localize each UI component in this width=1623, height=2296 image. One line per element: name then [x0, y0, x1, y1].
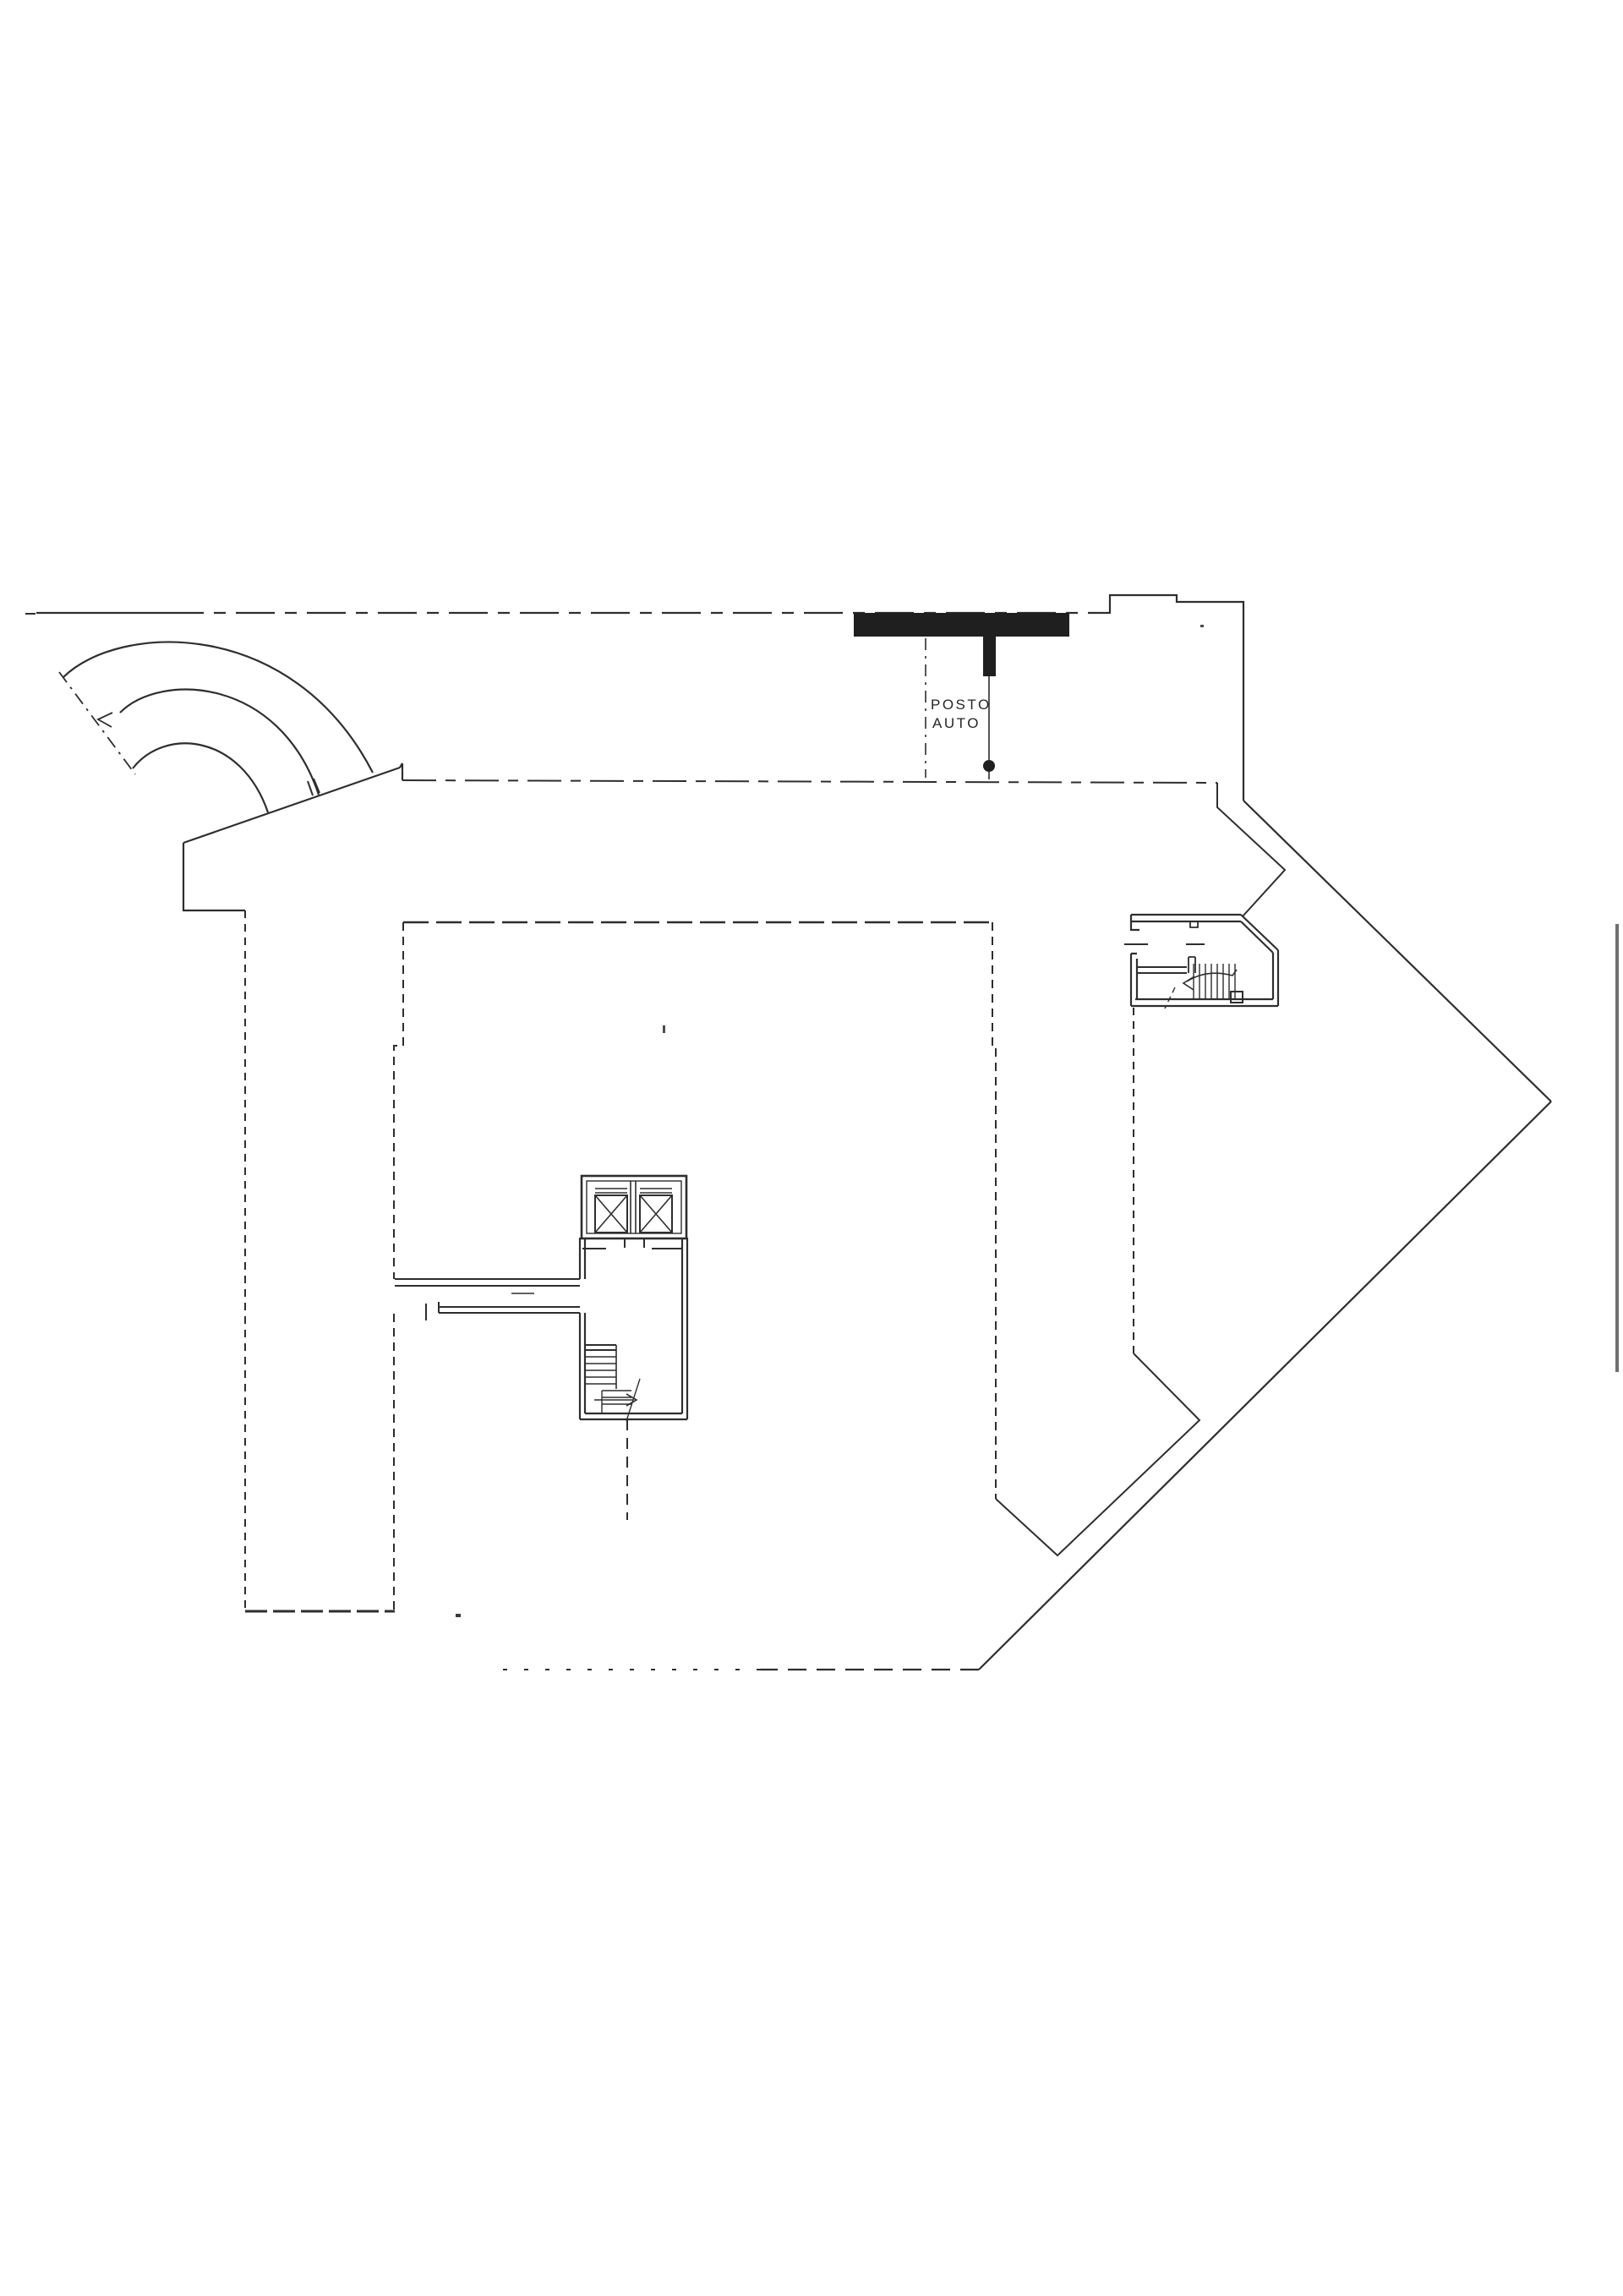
inner-outline-right [992, 922, 996, 1499]
elevator-left-door-lines [595, 1189, 627, 1193]
right-stair-west-wall [1131, 954, 1137, 1006]
right-stair-north-wall [1131, 915, 1241, 930]
right-stair-landing-tab [1189, 957, 1195, 973]
ramp-direction-arrow-icon [98, 713, 112, 727]
right-wing-upper-edge [1243, 801, 1551, 1102]
right-stair-landing-wall [1137, 967, 1187, 973]
elevator-right-door-lines [640, 1189, 672, 1193]
right-stair [1124, 915, 1278, 1009]
left-corner-step [183, 843, 245, 910]
ramp-centerline [59, 672, 135, 774]
overhead-dashed-line [402, 780, 1217, 783]
inner-outline-southeast [996, 1353, 1199, 1555]
corridor-north-wall [395, 1279, 580, 1286]
outer-boundary [25, 595, 1551, 1670]
left-strip [245, 910, 395, 1611]
floor-plan-drawing: POSTO AUTO [0, 0, 1623, 2296]
elevator-core [580, 1176, 687, 1520]
inner-footprint-outline [394, 922, 1199, 1611]
right-edge-scan-artifact [1615, 924, 1619, 1372]
ramp [59, 642, 373, 812]
parking-spot-stub [983, 637, 996, 676]
corridor-south-wall [439, 1302, 580, 1313]
core-stair-treads-upper [585, 1357, 616, 1384]
elevator-left-car-x-icon [595, 1195, 627, 1233]
overhead-edge-north [402, 780, 1285, 916]
scanned-page: POSTO AUTO [0, 0, 1623, 2296]
right-stair-northeast-diagonal [1241, 915, 1278, 953]
ramp-arc-outer [63, 642, 373, 773]
right-stair-east-wall [1273, 950, 1278, 1006]
scan-speck-3 [1200, 625, 1204, 627]
posto-auto-label-line1: POSTO [931, 697, 992, 713]
posto-auto-label-line2: AUTO [932, 715, 981, 731]
core-room-south-wall [580, 1413, 687, 1419]
corridor [395, 1279, 580, 1320]
parking-spot-dot [983, 760, 995, 772]
scan-speck-2 [663, 1025, 665, 1033]
right-stair-south-wall [1131, 999, 1278, 1006]
scan-speck-1 [456, 1614, 461, 1617]
core-stair [585, 1345, 640, 1421]
ramp-arc-middle [120, 690, 319, 795]
overhead-edge-east-jog [1217, 783, 1285, 916]
core-stair-top-edge [585, 1345, 616, 1350]
parking-spot: POSTO AUTO [854, 613, 1069, 779]
right-stair-treads [1194, 964, 1235, 999]
core-room-west-wall [580, 1238, 585, 1419]
top-right-step [1110, 595, 1243, 801]
elevator-shaft-divider [631, 1181, 636, 1233]
scan-artifacts [456, 625, 1619, 1617]
ramp-lower-edge [183, 763, 402, 843]
ramp-arc-inner [133, 743, 268, 812]
parking-spot-bar [854, 613, 1069, 637]
inner-outline-left-upper [394, 922, 403, 1279]
core-room-east-wall [682, 1238, 687, 1419]
right-stair-pillar [1231, 992, 1243, 1003]
right-wing-lower-edge [979, 1102, 1551, 1670]
elevator-right-car-x-icon [640, 1195, 672, 1233]
